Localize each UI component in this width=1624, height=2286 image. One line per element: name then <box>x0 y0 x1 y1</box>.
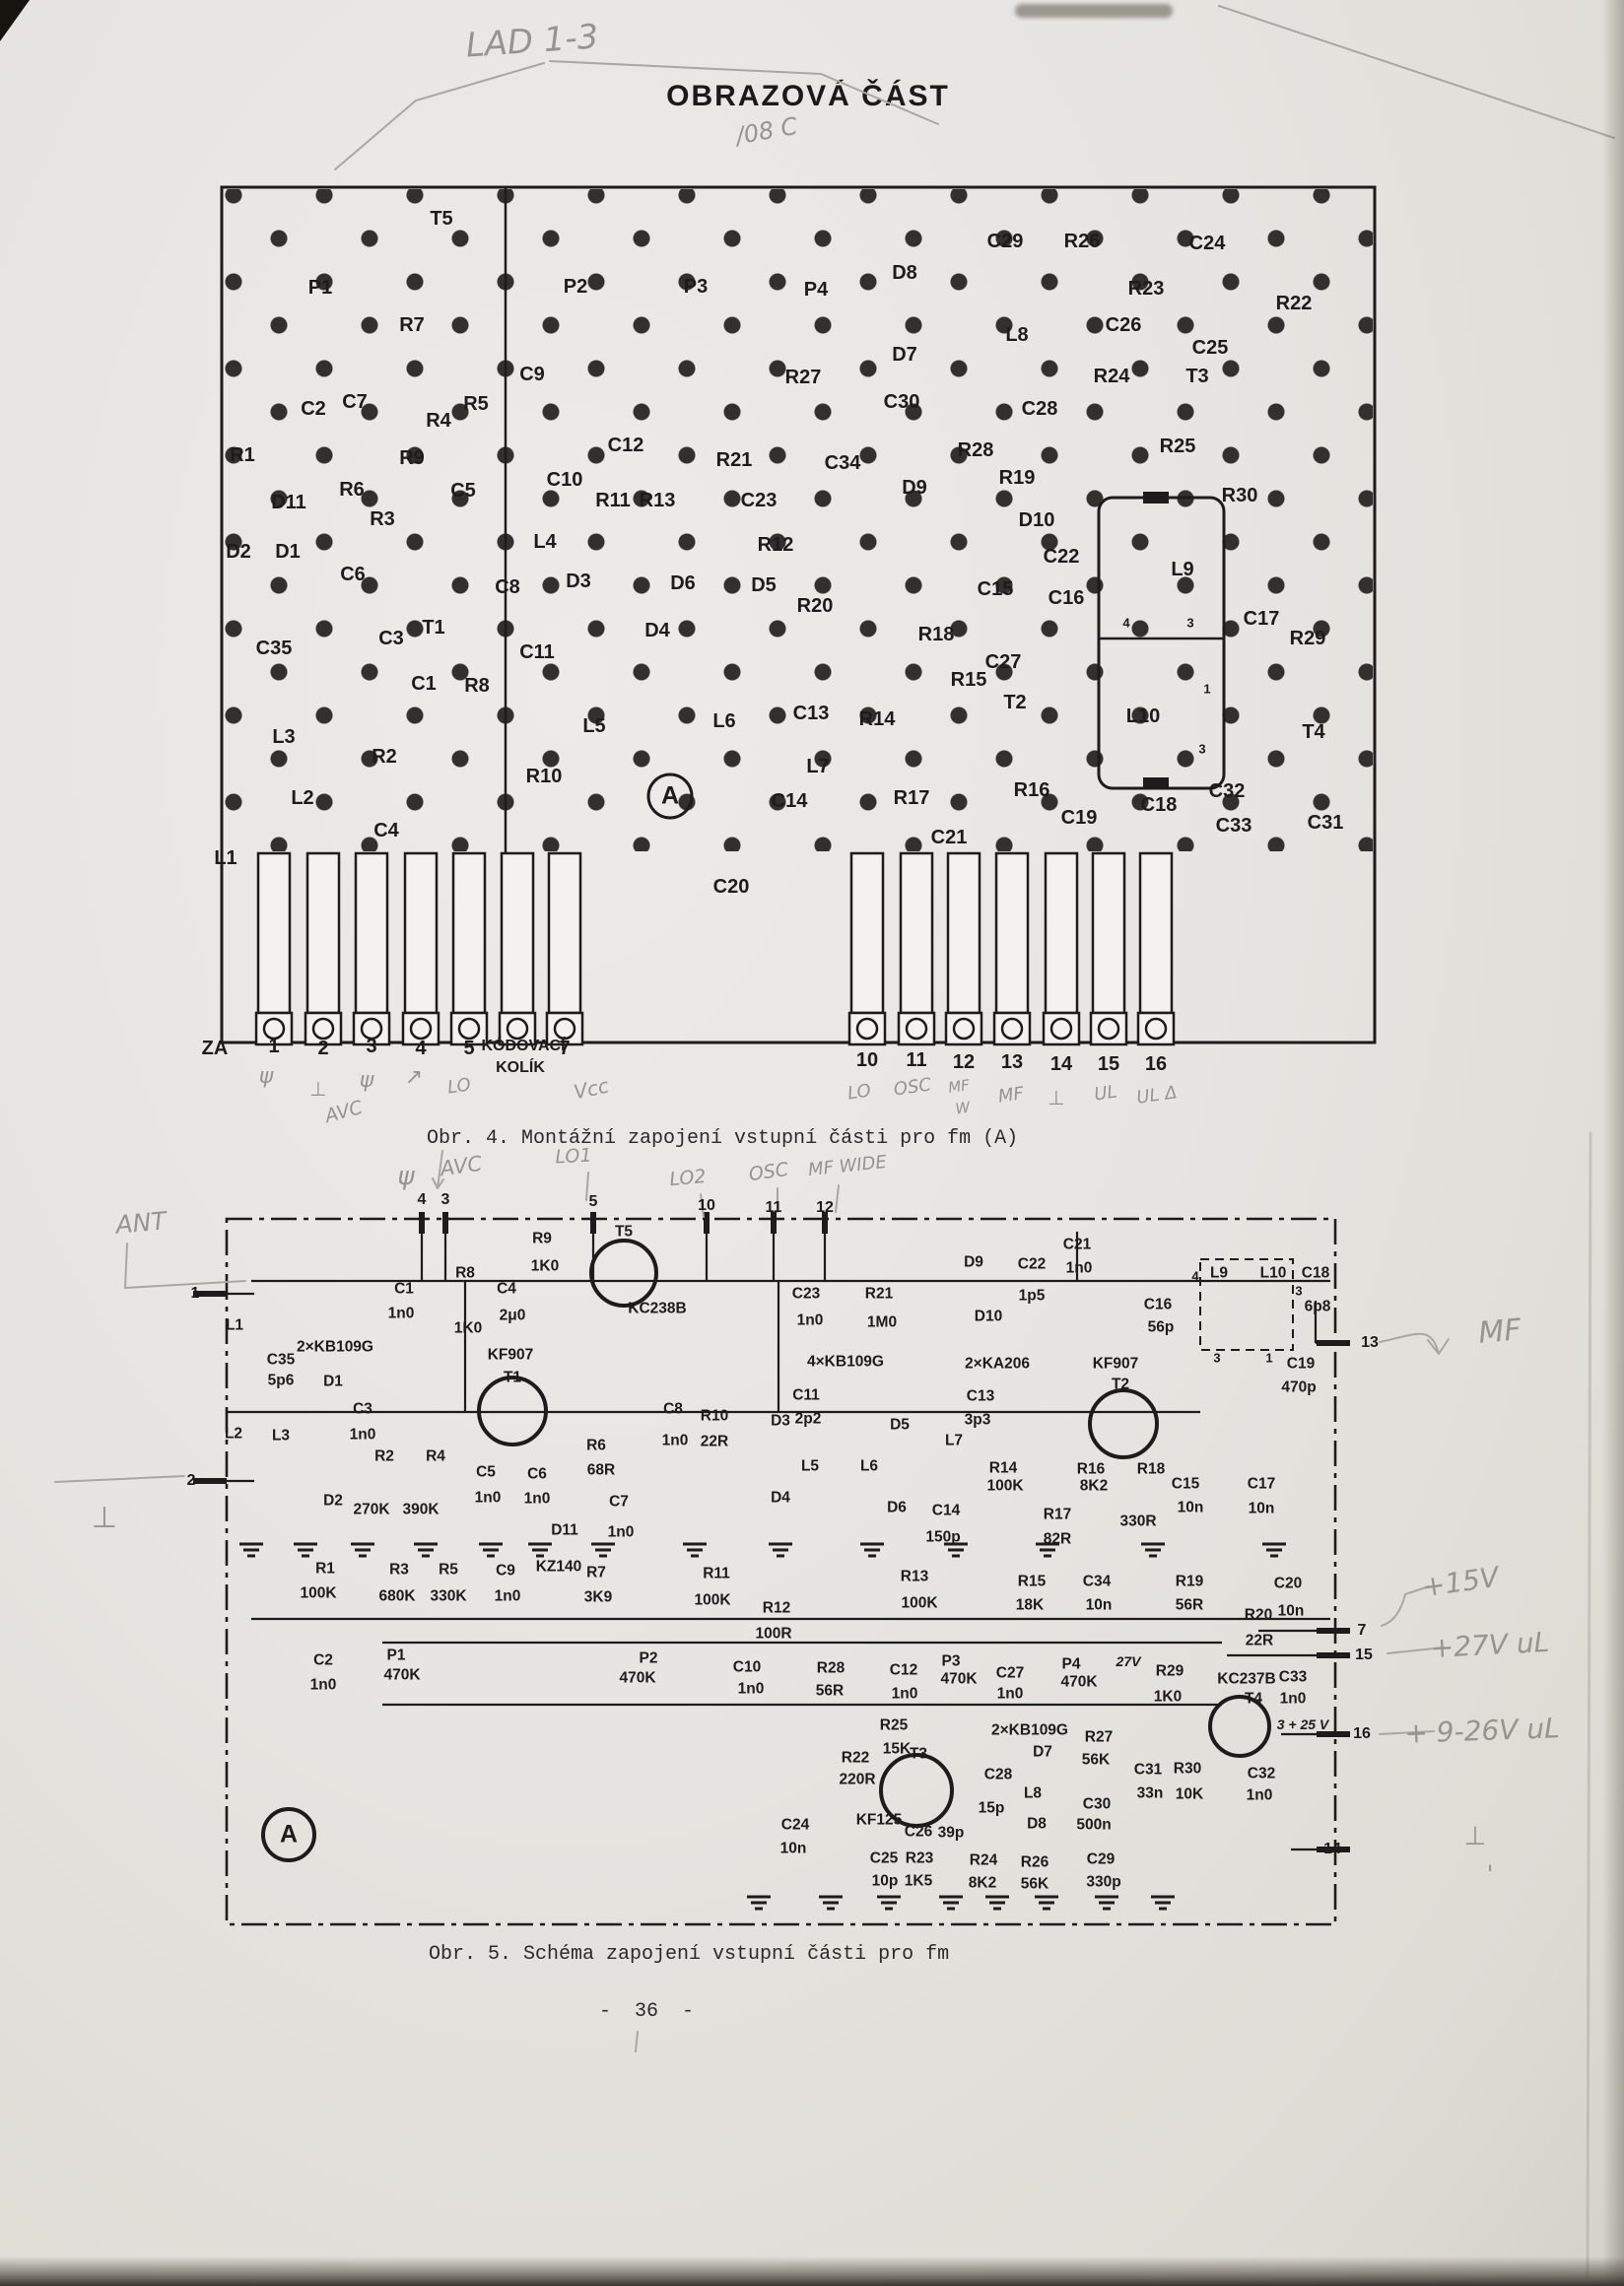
scan-edge-shadow-bottom <box>0 2256 1624 2286</box>
scan-edge-shadow-right <box>1602 0 1624 2286</box>
scanned-page: OBRAZOVÁ ČÁST <box>0 0 1624 2286</box>
page-number: - 36 - <box>599 2000 694 2023</box>
figure4-caption: Obr. 4. Montážní zapojení vstupní části … <box>427 1127 1018 1150</box>
figure4-variant-badge: A <box>661 782 679 811</box>
figure5-variant-badge: A <box>280 1821 298 1849</box>
figure5-caption: Obr. 5. Schéma zapojení vstupní části pr… <box>429 1943 949 1966</box>
